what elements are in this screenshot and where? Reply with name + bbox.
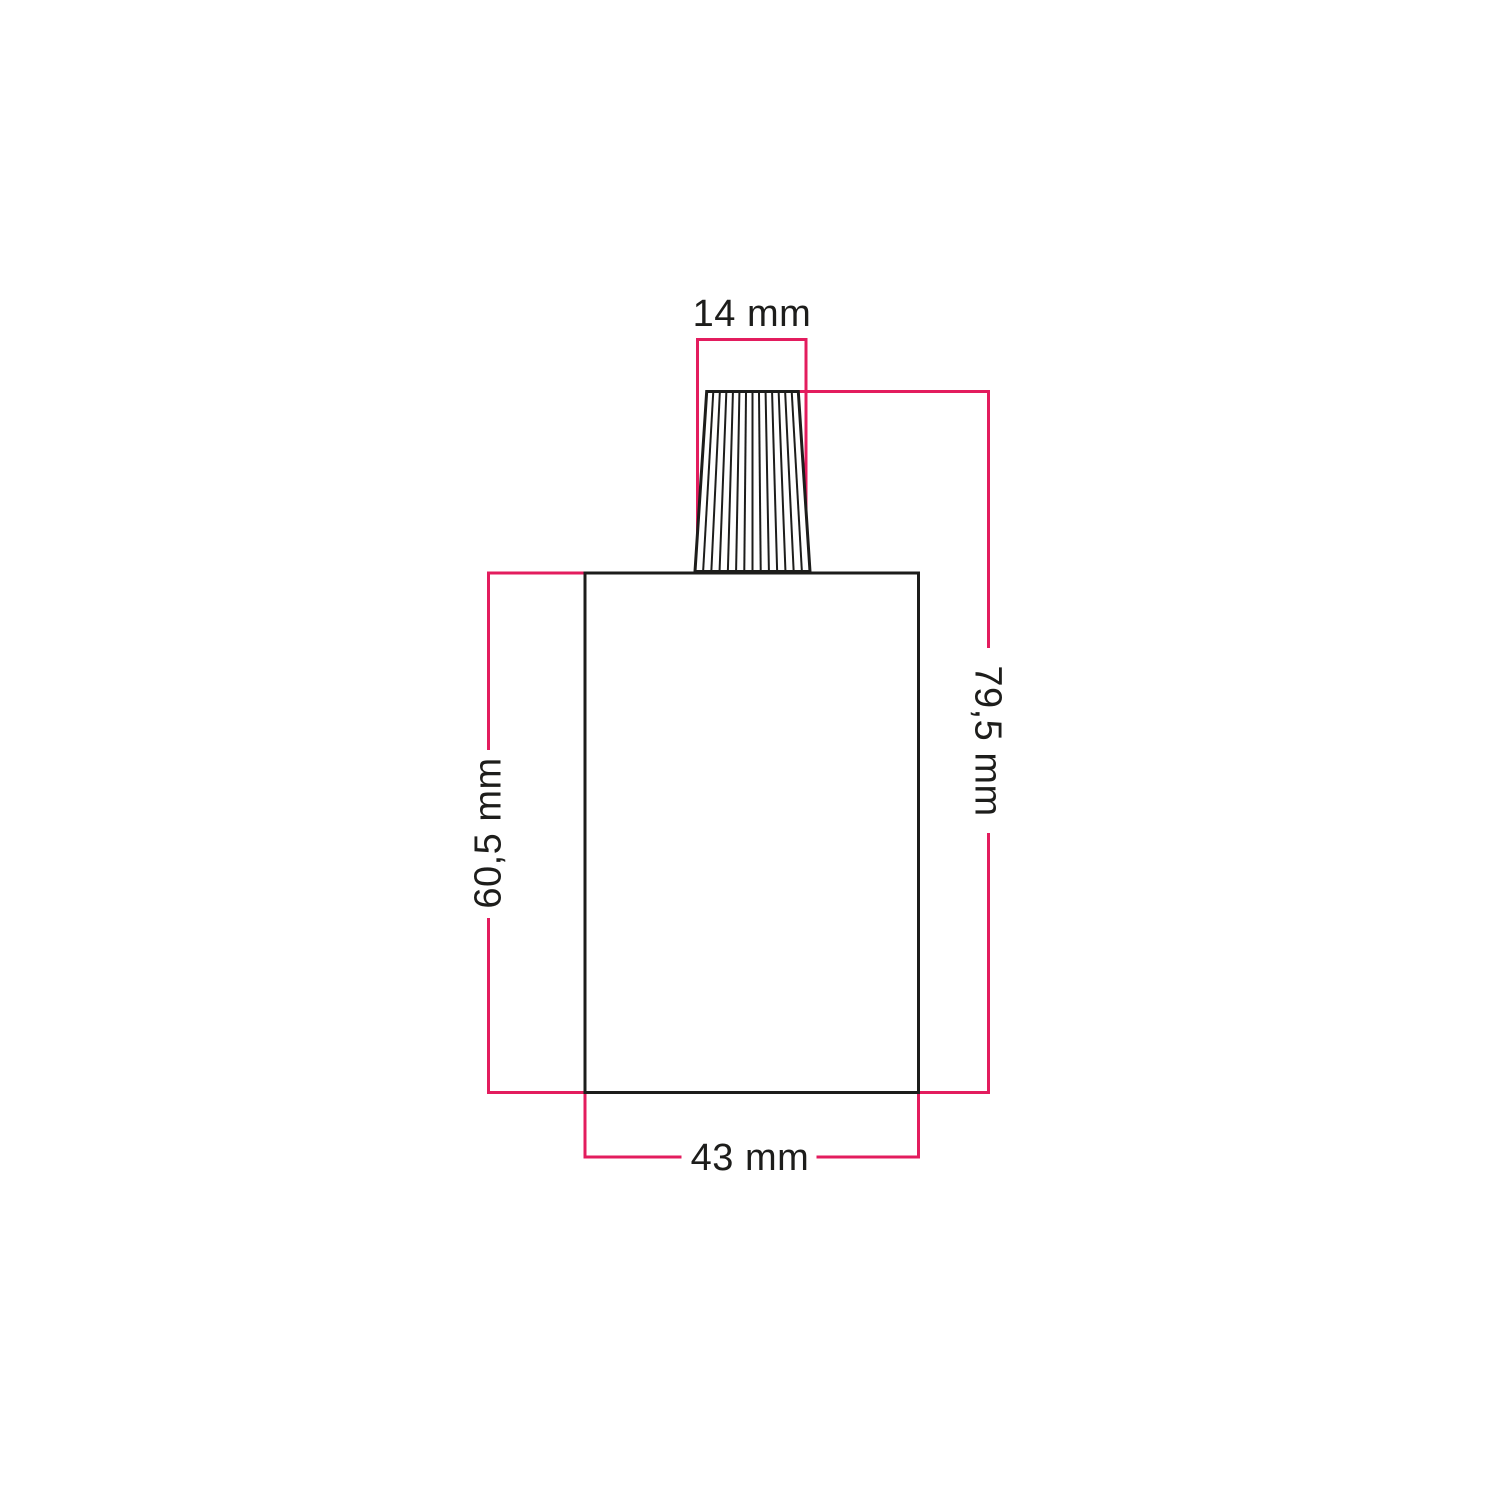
label-body-height: 60,5 mm bbox=[468, 757, 510, 908]
dimension-line-body-width-left bbox=[585, 1093, 682, 1158]
cable-gland bbox=[695, 392, 810, 572]
label-top-width: 14 mm bbox=[693, 293, 812, 335]
label-total-height: 79,5 mm bbox=[967, 665, 1009, 816]
label-body-width: 43 mm bbox=[691, 1137, 810, 1179]
technical-dimension-drawing: 14 mm 79,5 mm 60,5 mm 43 mm bbox=[0, 0, 1500, 1500]
dimension-line-body-width-right bbox=[817, 1093, 919, 1158]
dimension-diagram-page: 14 mm 79,5 mm 60,5 mm 43 mm bbox=[0, 0, 1500, 1500]
dimension-line-body-height-upper bbox=[489, 573, 586, 750]
dimension-line-total-height-lower bbox=[919, 833, 989, 1093]
socket-body-outline bbox=[585, 573, 919, 1093]
dimension-line-body-height-lower bbox=[489, 918, 586, 1093]
